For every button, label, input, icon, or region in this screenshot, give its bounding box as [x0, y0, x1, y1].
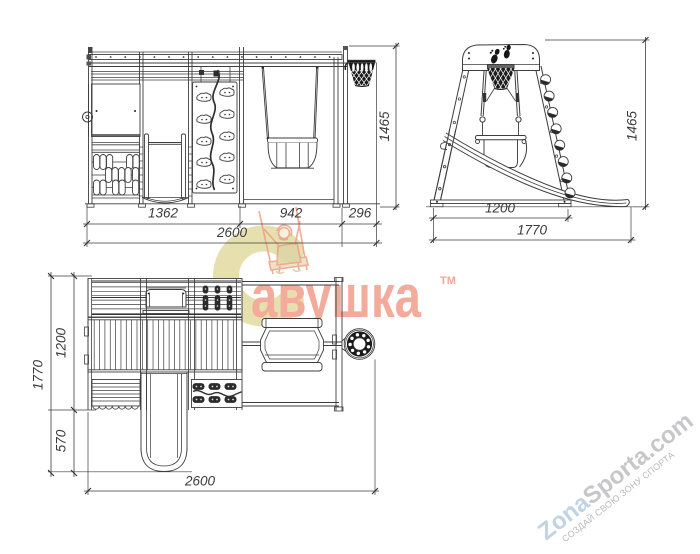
svg-text:942: 942 — [280, 206, 303, 221]
svg-text:ТМ: ТМ — [440, 275, 456, 287]
svg-text:2600: 2600 — [184, 474, 216, 489]
svg-text:2600: 2600 — [216, 225, 248, 240]
svg-text:296: 296 — [348, 206, 372, 221]
svg-text:1200: 1200 — [485, 201, 516, 216]
svg-text:1770: 1770 — [31, 359, 46, 390]
svg-text:570: 570 — [54, 429, 69, 452]
svg-text:1200: 1200 — [54, 327, 69, 358]
svg-text:1465: 1465 — [377, 111, 392, 142]
svg-text:1362: 1362 — [148, 206, 179, 221]
svg-text:1465: 1465 — [625, 110, 640, 141]
svg-text:1770: 1770 — [517, 223, 548, 238]
